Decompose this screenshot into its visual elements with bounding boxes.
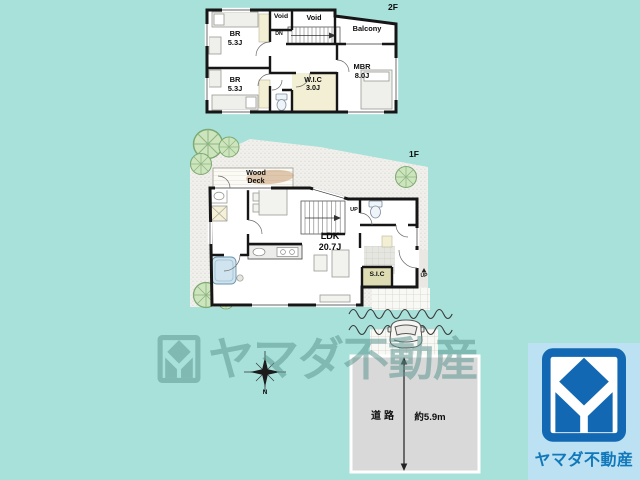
company-logo-card: ヤマダ不動産	[528, 343, 640, 480]
room-label-void1: Void	[266, 13, 296, 21]
stairs-1f	[301, 201, 345, 234]
shoe-cabinet	[382, 236, 392, 247]
stairs-down-label: DN	[272, 31, 286, 37]
stairs-2f	[288, 27, 340, 44]
toilet-icon-1f	[369, 201, 382, 218]
kitchen-counter	[247, 244, 302, 259]
watermark: ヤマダ不動産	[156, 334, 478, 384]
room-label-sic: S.I.C	[360, 271, 394, 279]
toilet-icon-2f	[276, 94, 287, 111]
road-label: 道路	[362, 411, 406, 423]
compass-north-label: N	[258, 389, 272, 397]
stairs-up-label: UP	[346, 207, 362, 213]
room-label-ldk: LDK20.7J	[306, 231, 354, 252]
closet-br2	[259, 80, 270, 108]
room-label-br1: BR5.3J	[216, 30, 254, 48]
floor2-label: 2F	[384, 2, 402, 12]
road-width-label: 約5.9m	[406, 412, 454, 423]
floorplan-image: 2F BR5.3J Void Void DN Balcony BR5.3J W.…	[0, 0, 640, 480]
watermark-logo-icon	[156, 334, 202, 384]
floor1-label: 1F	[404, 149, 424, 159]
room-label-wic: W.I.C3.0J	[294, 76, 332, 93]
room-label-br2: BR5.3J	[216, 76, 254, 94]
company-name: ヤマダ不動産	[534, 446, 633, 470]
room-label-wood-deck: Wood Deck	[240, 169, 272, 186]
entrance-step-label: UP	[417, 274, 431, 280]
room-label-balcony: Balcony	[342, 25, 392, 34]
company-logo-icon	[542, 348, 626, 442]
room-label-mbr: MBR8.0J	[342, 63, 382, 81]
room-label-void2: Void	[298, 14, 330, 22]
watermark-text: ヤマダ不動産	[208, 336, 478, 382]
